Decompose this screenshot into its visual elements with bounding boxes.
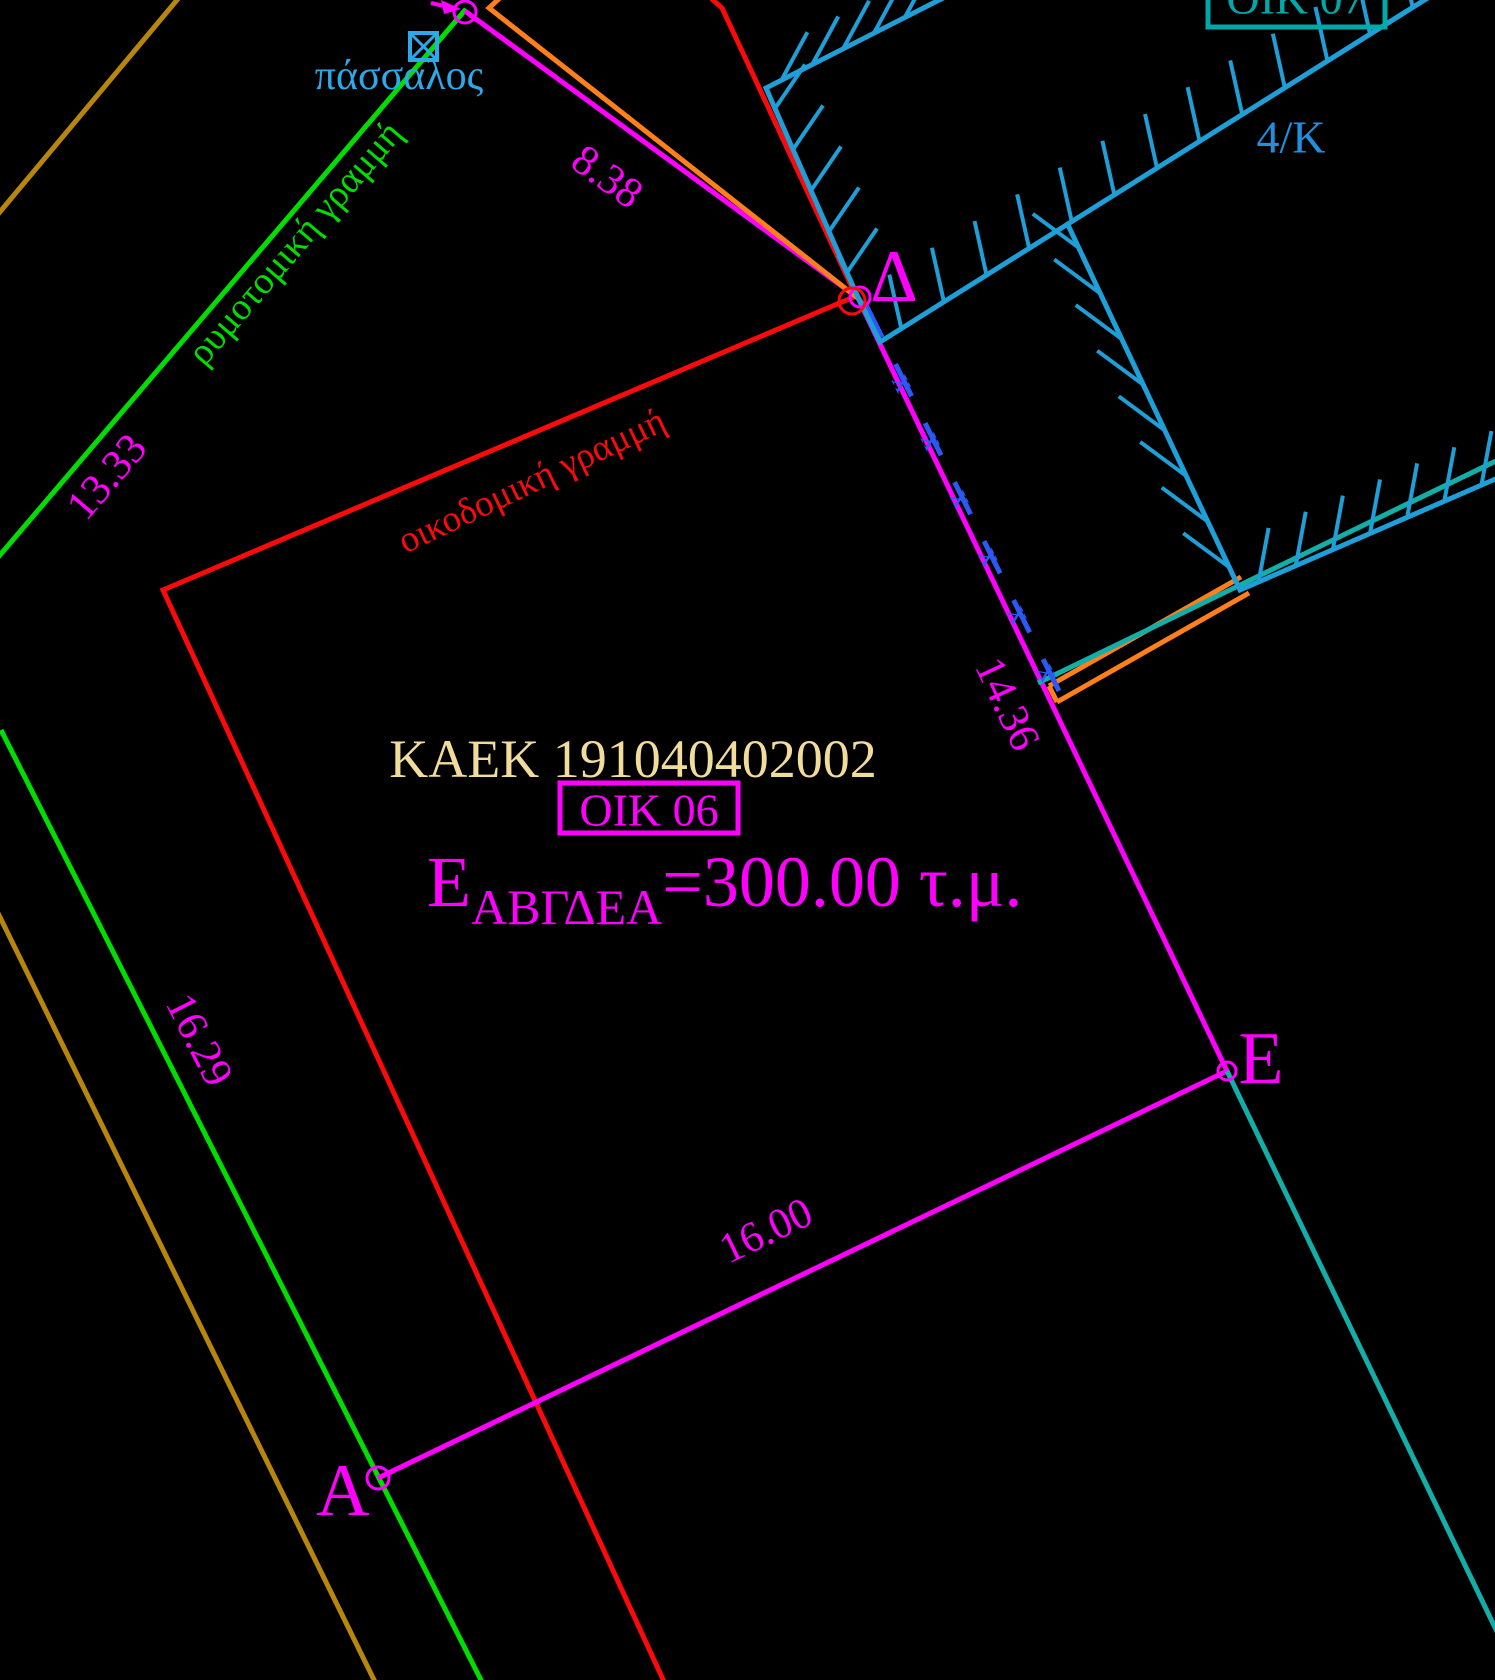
area-label-part-1: ΑΒΓΔΕΑ <box>471 879 662 935</box>
neighbor-parcel-label: ΟΙΚ 07 <box>1226 0 1365 24</box>
parcel-label: ΟΙΚ 06 <box>579 785 718 836</box>
kaek-label: ΚΑΕΚ 191040402002 <box>389 729 876 789</box>
area-label-part-0: Ε <box>427 842 471 922</box>
block-label: 4/Κ <box>1257 112 1326 163</box>
drawing-background <box>0 0 1495 1680</box>
survey-plan-canvas: xxxxxxπάσσαλοςρυμοτομική γραμμή13.33οικο… <box>0 0 1495 1680</box>
point-label-epsilon: Ε <box>1238 1018 1283 1100</box>
cad-survey-drawing: xxxxxxπάσσαλοςρυμοτομική γραμμή13.33οικο… <box>0 0 1495 1680</box>
point-label-delta: Δ <box>870 236 918 318</box>
point-label-alpha: Α <box>316 1450 369 1532</box>
stake-label: πάσσαλος <box>315 53 484 99</box>
area-label-part-2: =300.00 τ.μ. <box>662 842 1022 922</box>
